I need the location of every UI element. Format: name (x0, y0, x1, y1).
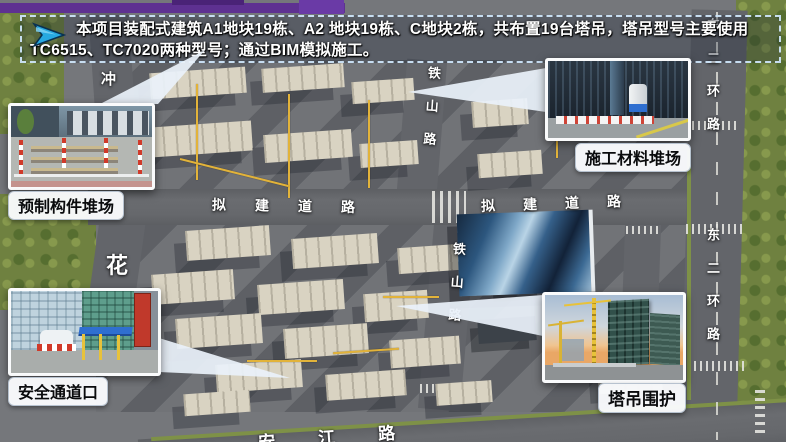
building-block (283, 323, 369, 359)
building-block (351, 78, 414, 104)
label-material-yard-text: 施工材料堆场 (585, 151, 681, 168)
glass-roof-building (457, 210, 596, 297)
project-description-banner: 本项目装配式建筑A1地块19栋、A2 地块19栋、C地块2栋，共布置19台塔吊，… (20, 15, 781, 63)
building-block (471, 98, 529, 128)
label-prefab-yard: 预制构件堆场 (8, 191, 124, 220)
photo-prefab-yard (8, 103, 155, 190)
label-prefab-yard-text: 预制构件堆场 (18, 199, 114, 216)
photo-safety-gate (8, 288, 161, 376)
building-block (175, 313, 263, 349)
road-label-hua: 花 (106, 248, 128, 280)
paper-plane-arrow-icon (32, 22, 66, 48)
building-block (325, 369, 407, 401)
stopline-secondary (626, 226, 658, 234)
label-crane-fence-text: 塔吊围护 (608, 390, 676, 409)
crosswalk-river-road (755, 390, 765, 436)
building-block (291, 233, 379, 269)
building-block (477, 316, 537, 344)
building-block (363, 290, 429, 322)
crane-line (196, 84, 198, 180)
building-block (185, 225, 271, 261)
grass-median-ring (687, 150, 691, 400)
label-safety-gate-text: 安全通道口 (18, 385, 98, 402)
road-label-ring-lower: 东二环路 (703, 228, 722, 360)
stopline-ring-3 (694, 361, 744, 371)
label-material-yard: 施工材料堆场 (575, 143, 691, 172)
crane-line (288, 94, 290, 198)
crane-line (383, 296, 439, 298)
building-block (215, 359, 303, 393)
crane-line (247, 360, 317, 362)
building-block (257, 279, 345, 315)
accent-bar-thin (172, 0, 244, 5)
accent-bar-small (299, 0, 344, 14)
label-crane-fence: 塔吊围护 (598, 383, 686, 413)
photo-crane-fence (542, 292, 686, 383)
building-block (477, 150, 543, 178)
road-label-chong: 冲 (101, 68, 116, 89)
road-label-river: 安江路 (257, 416, 438, 442)
road-label-planned-left: 拟建道路 (212, 195, 384, 218)
building-block (151, 269, 235, 305)
crane-line (368, 100, 370, 188)
label-safety-gate: 安全通道口 (8, 377, 108, 406)
photo-material-yard (545, 58, 691, 141)
bim-slide: 铁山路 铁山路 拟建道路 拟建道路 东二环路 东二环路 安江路 花 冲 预制构件… (0, 0, 786, 442)
building-block (183, 390, 250, 417)
building-block (435, 380, 492, 406)
banner-text-line1: 本项目装配式建筑A1地块19栋、A2 地块19栋、C地块2栋，共布置19台塔吊，… (30, 19, 773, 40)
